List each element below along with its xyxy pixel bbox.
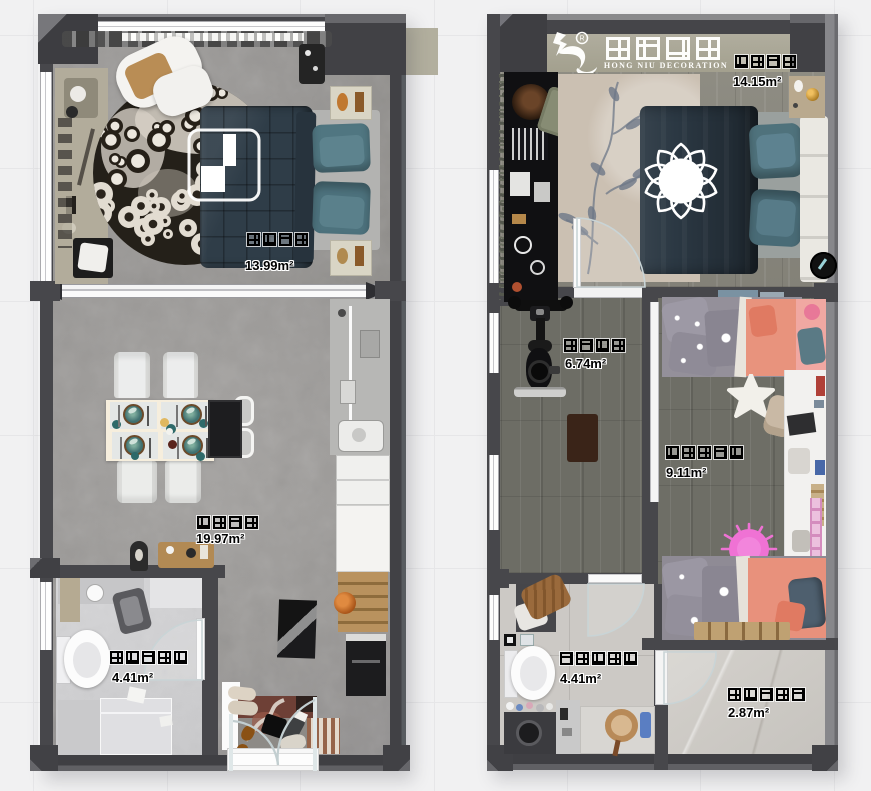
svg-text:R: R bbox=[579, 36, 584, 43]
